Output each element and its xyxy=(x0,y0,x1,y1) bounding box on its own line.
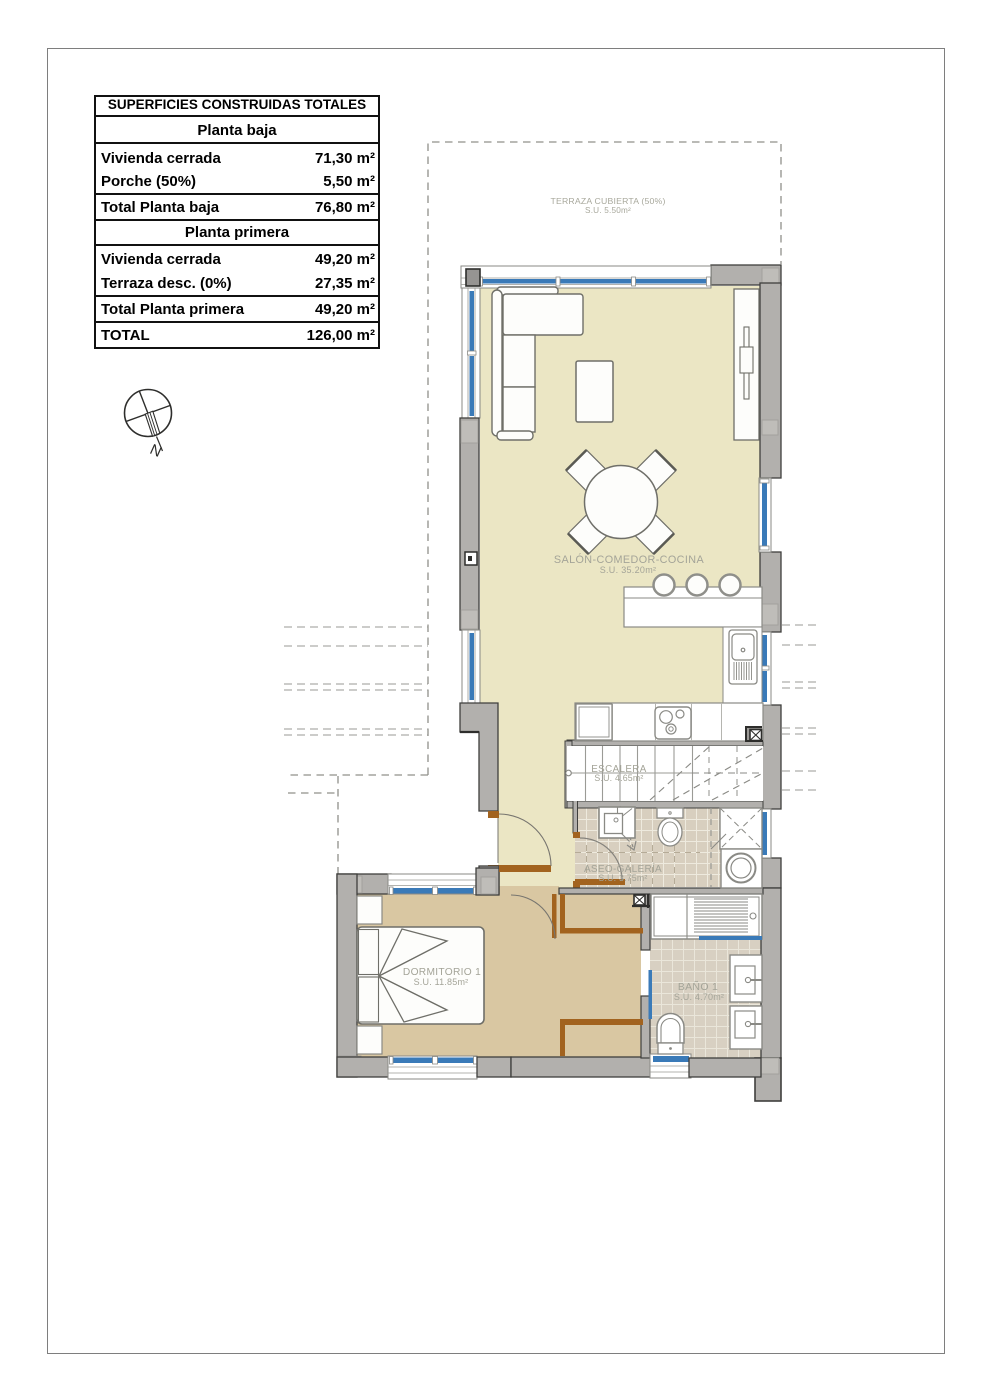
svg-text:TERRAZA CUBIERTA (50%): TERRAZA CUBIERTA (50%) xyxy=(550,196,665,206)
svg-text:S.U. 4.65m²: S.U. 4.65m² xyxy=(594,773,643,783)
svg-text:S.U. 11.85m²: S.U. 11.85m² xyxy=(414,977,469,987)
svg-text:N: N xyxy=(147,441,164,461)
svg-text:S.U. 35.20m²: S.U. 35.20m² xyxy=(600,565,657,575)
svg-text:S.U. 4.70m²: S.U. 4.70m² xyxy=(674,992,724,1002)
svg-text:S.U. 5.50m²: S.U. 5.50m² xyxy=(585,206,631,215)
svg-text:S.U. 3.75m²: S.U. 3.75m² xyxy=(598,873,647,883)
